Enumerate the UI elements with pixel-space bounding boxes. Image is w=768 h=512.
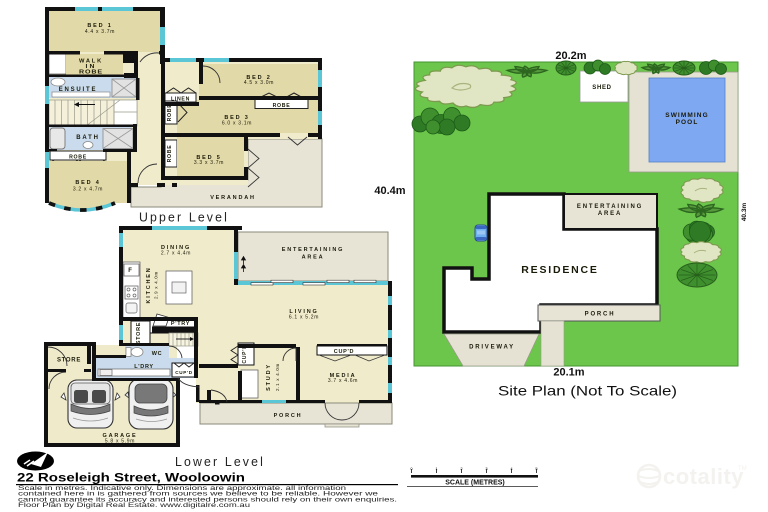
svg-text:SCALE (METRES): SCALE (METRES): [445, 480, 505, 487]
svg-text:4.4 x 3.7m: 4.4 x 3.7m: [85, 29, 115, 35]
svg-text:40.3m: 40.3m: [741, 203, 748, 222]
svg-text:STUDY: STUDY: [266, 363, 272, 391]
svg-text:AREA: AREA: [598, 211, 622, 217]
svg-text:STORE: STORE: [57, 358, 81, 364]
svg-text:3.3 x 3.7m: 3.3 x 3.7m: [194, 160, 224, 166]
svg-text:CUP'D: CUP'D: [334, 349, 354, 355]
svg-text:40.4m: 40.4m: [374, 185, 405, 197]
svg-text:SHED: SHED: [592, 85, 611, 91]
svg-text:BATH: BATH: [76, 135, 99, 141]
svg-text:KITCHEN: KITCHEN: [146, 266, 152, 303]
svg-text:3.2 x 4.7m: 3.2 x 4.7m: [73, 187, 103, 193]
svg-text:P'TRY: P'TRY: [171, 321, 190, 327]
svg-text:ENTERTAINING: ENTERTAINING: [282, 247, 344, 253]
svg-text:F: F: [128, 268, 133, 274]
svg-text:Site Plan (Not To Scale): Site Plan (Not To Scale): [498, 383, 677, 399]
svg-text:3.7 x 4.6m: 3.7 x 4.6m: [328, 378, 358, 384]
svg-text:ROBE: ROBE: [167, 145, 173, 163]
svg-text:2.9 x 4.0m: 2.9 x 4.0m: [154, 271, 159, 299]
svg-text:PORCH: PORCH: [585, 312, 616, 318]
svg-text:cotality: cotality: [663, 464, 744, 489]
svg-text:Lower Level: Lower Level: [175, 455, 265, 469]
svg-text:WC: WC: [152, 351, 163, 357]
svg-text:4.5 x 3.0m: 4.5 x 3.0m: [244, 80, 274, 86]
svg-text:ROBE: ROBE: [167, 104, 173, 122]
svg-text:ROBE: ROBE: [69, 155, 87, 161]
svg-text:ROBE: ROBE: [273, 103, 291, 109]
svg-text:20.1m: 20.1m: [553, 367, 584, 379]
svg-text:RESIDENCE: RESIDENCE: [521, 264, 598, 276]
svg-text:2.1 x 4.0m: 2.1 x 4.0m: [275, 363, 280, 391]
svg-text:Upper Level: Upper Level: [139, 211, 229, 225]
svg-text:AREA: AREA: [302, 255, 325, 261]
svg-text:20.2m: 20.2m: [555, 50, 586, 62]
svg-text:POOL: POOL: [676, 119, 699, 126]
svg-text:22 Roseleigh Street, Wooloowin: 22 Roseleigh Street, Wooloowin: [17, 473, 245, 485]
svg-text:6.0 x 3.1m: 6.0 x 3.1m: [222, 121, 252, 127]
svg-text:Floor Plan by Digital Real Est: Floor Plan by Digital Real Estate. www.d…: [18, 502, 251, 509]
svg-text:VERANDAH: VERANDAH: [210, 195, 256, 201]
svg-text:6.1 x 5.2m: 6.1 x 5.2m: [289, 314, 319, 320]
svg-text:2.7 x 4.4m: 2.7 x 4.4m: [161, 251, 191, 257]
svg-text:SWIMMING: SWIMMING: [665, 112, 708, 119]
svg-text:STORE: STORE: [136, 322, 142, 344]
svg-text:PORCH: PORCH: [274, 413, 303, 419]
svg-text:CUP'D: CUP'D: [175, 370, 193, 375]
svg-text:DRIVEWAY: DRIVEWAY: [469, 345, 515, 351]
svg-text:BED 4: BED 4: [75, 180, 100, 186]
svg-text:ENTERTAINING: ENTERTAINING: [577, 204, 643, 210]
svg-text:TM: TM: [738, 466, 747, 472]
